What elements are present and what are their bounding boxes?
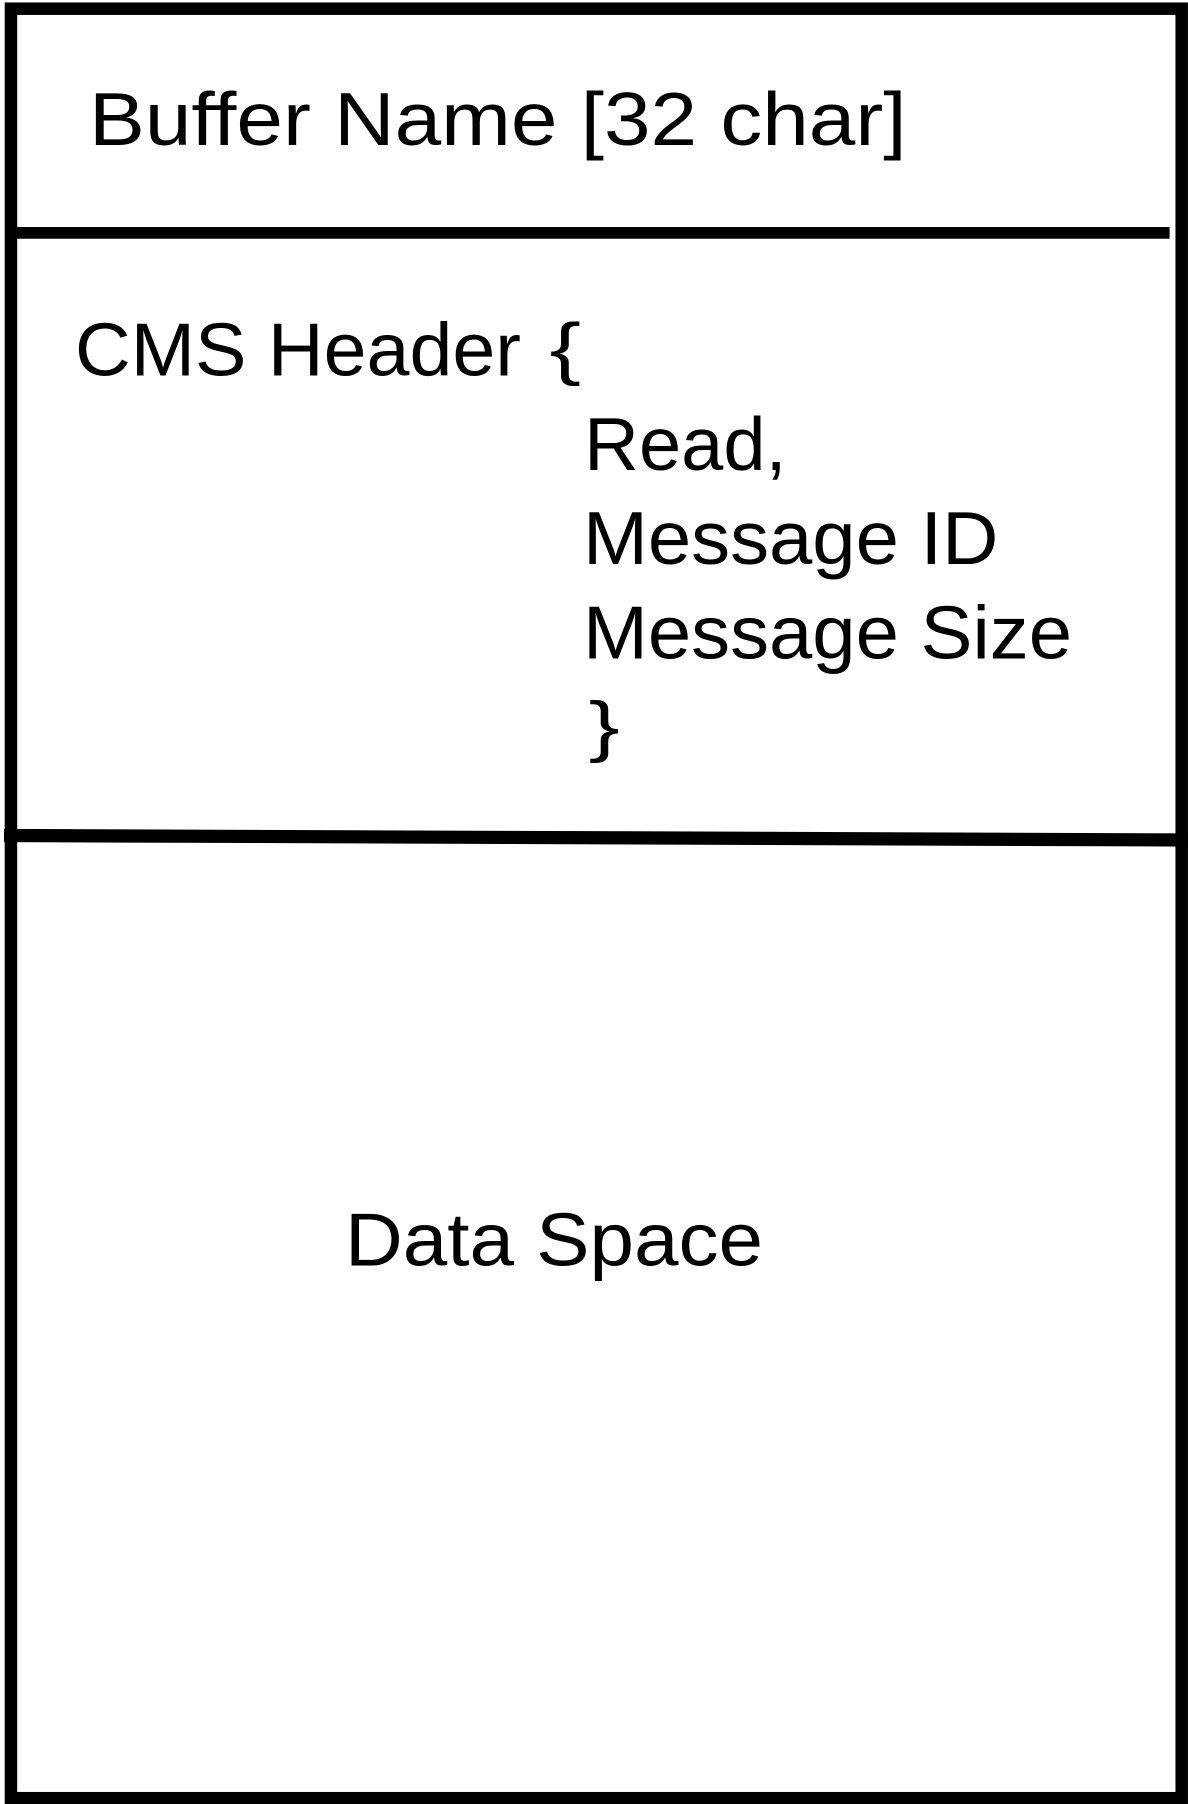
- svg-text:Message ID: Message ID: [583, 496, 998, 580]
- svg-text:Data Space: Data Space: [345, 1198, 763, 1282]
- svg-text:Message Size: Message Size: [583, 591, 1072, 675]
- svg-text:Read,: Read,: [584, 402, 786, 486]
- svg-text:CMS Header: CMS Header: [75, 308, 521, 392]
- svg-text:Buffer Name [32 char]: Buffer Name [32 char]: [89, 77, 907, 161]
- svg-text:{: {: [550, 309, 581, 386]
- svg-text:}: }: [589, 688, 620, 764]
